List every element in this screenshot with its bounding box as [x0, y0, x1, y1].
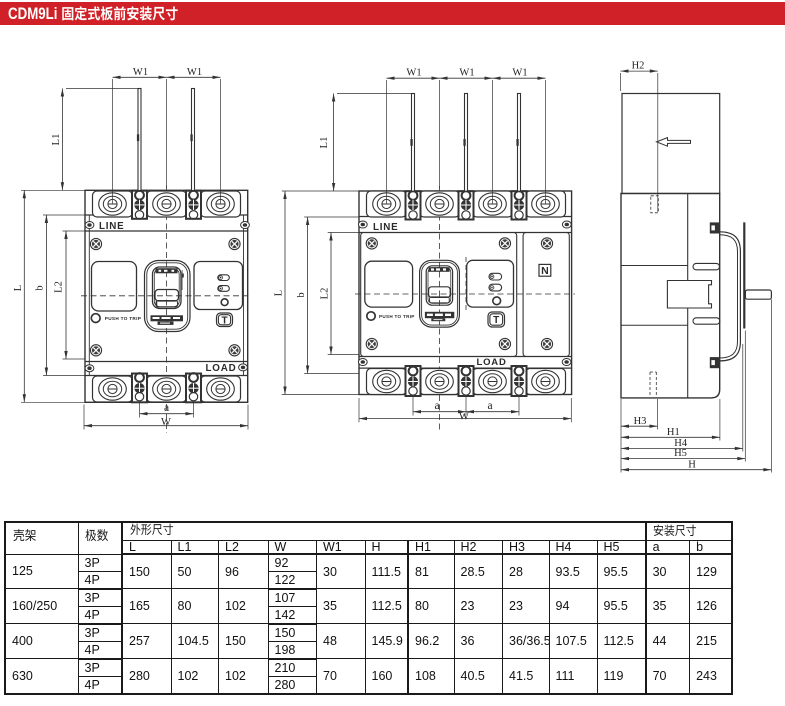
svg-text:T: T [221, 315, 227, 326]
svg-text:L: L [13, 285, 24, 291]
svg-text:LOAD: LOAD [477, 357, 507, 368]
svg-text:W: W [161, 417, 171, 428]
svg-text:W1: W1 [512, 68, 527, 79]
svg-text:L1: L1 [319, 137, 330, 149]
svg-text:N: N [541, 265, 549, 277]
svg-text:H: H [688, 459, 696, 470]
svg-text:PUSH TO TRIP: PUSH TO TRIP [105, 316, 141, 321]
svg-text:L1: L1 [51, 134, 62, 146]
svg-text:a: a [434, 400, 439, 412]
svg-text:LINE: LINE [99, 221, 125, 232]
svg-text:a: a [164, 402, 169, 414]
svg-text:CDM9Li: CDM9Li [8, 5, 58, 23]
svg-text:W1: W1 [406, 68, 421, 79]
svg-text:b: b [296, 292, 307, 297]
svg-text:T: T [493, 315, 499, 326]
svg-text:b: b [34, 285, 45, 290]
svg-text:W: W [459, 411, 469, 422]
svg-text:a: a [487, 400, 492, 412]
svg-text:PUSH TO TRIP: PUSH TO TRIP [379, 314, 415, 319]
svg-text:L2: L2 [54, 281, 65, 293]
svg-text:H3: H3 [634, 416, 647, 427]
svg-text:H5: H5 [674, 448, 687, 459]
svg-text:H2: H2 [632, 60, 645, 71]
svg-text:L2: L2 [319, 288, 330, 300]
svg-text:LINE: LINE [373, 222, 399, 233]
svg-text:L: L [273, 290, 284, 296]
svg-text:W1: W1 [187, 67, 202, 78]
svg-text:H1: H1 [667, 427, 680, 438]
svg-text:W1: W1 [133, 67, 148, 78]
svg-text:W1: W1 [459, 68, 474, 79]
svg-text:LOAD: LOAD [206, 363, 237, 374]
